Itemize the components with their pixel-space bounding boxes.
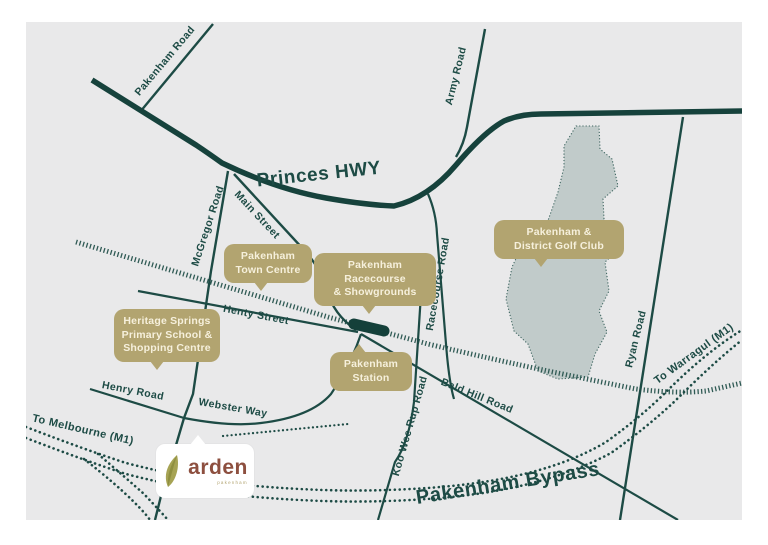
ryan-road — [620, 117, 683, 520]
station-marker — [347, 317, 390, 337]
callout-line: Pakenham — [336, 358, 406, 372]
callout-pakenham-town-centre: Pakenham Town Centre — [224, 244, 312, 283]
arden-leaf-icon — [162, 454, 184, 488]
callout-golf-club: Pakenham & District Golf Club — [494, 220, 624, 259]
callout-line: Shopping Centre — [120, 342, 214, 356]
callout-line: Primary School & — [120, 329, 214, 343]
callout-line: Pakenham Racecourse — [320, 259, 430, 286]
callout-pakenham-station: Pakenham Station — [330, 352, 412, 391]
arden-logo-text: arden pakenham — [188, 457, 248, 485]
callout-heritage-springs: Heritage Springs Primary School & Shoppi… — [114, 309, 220, 362]
princes-hwy-road — [92, 80, 742, 206]
callout-line: & Showgrounds — [320, 286, 430, 300]
page: { "map": { "road_labels": [ {"id": "pake… — [0, 0, 768, 545]
callout-line: Town Centre — [230, 264, 306, 278]
dotted-connector-road — [223, 424, 348, 436]
callout-line: District Golf Club — [500, 240, 618, 254]
location-map: Pakenham Road Princes HWY Army Road McGr… — [26, 22, 742, 520]
callout-line: Station — [336, 372, 406, 386]
callout-line: Heritage Springs — [120, 315, 214, 329]
arden-brand-name: arden — [188, 457, 248, 478]
arden-logo-callout: arden pakenham — [156, 444, 254, 498]
callout-pakenham-racecourse: Pakenham Racecourse & Showgrounds — [314, 253, 436, 306]
arden-tagline: pakenham — [188, 480, 248, 485]
callout-line: Pakenham — [230, 250, 306, 264]
callout-line: Pakenham & — [500, 226, 618, 240]
